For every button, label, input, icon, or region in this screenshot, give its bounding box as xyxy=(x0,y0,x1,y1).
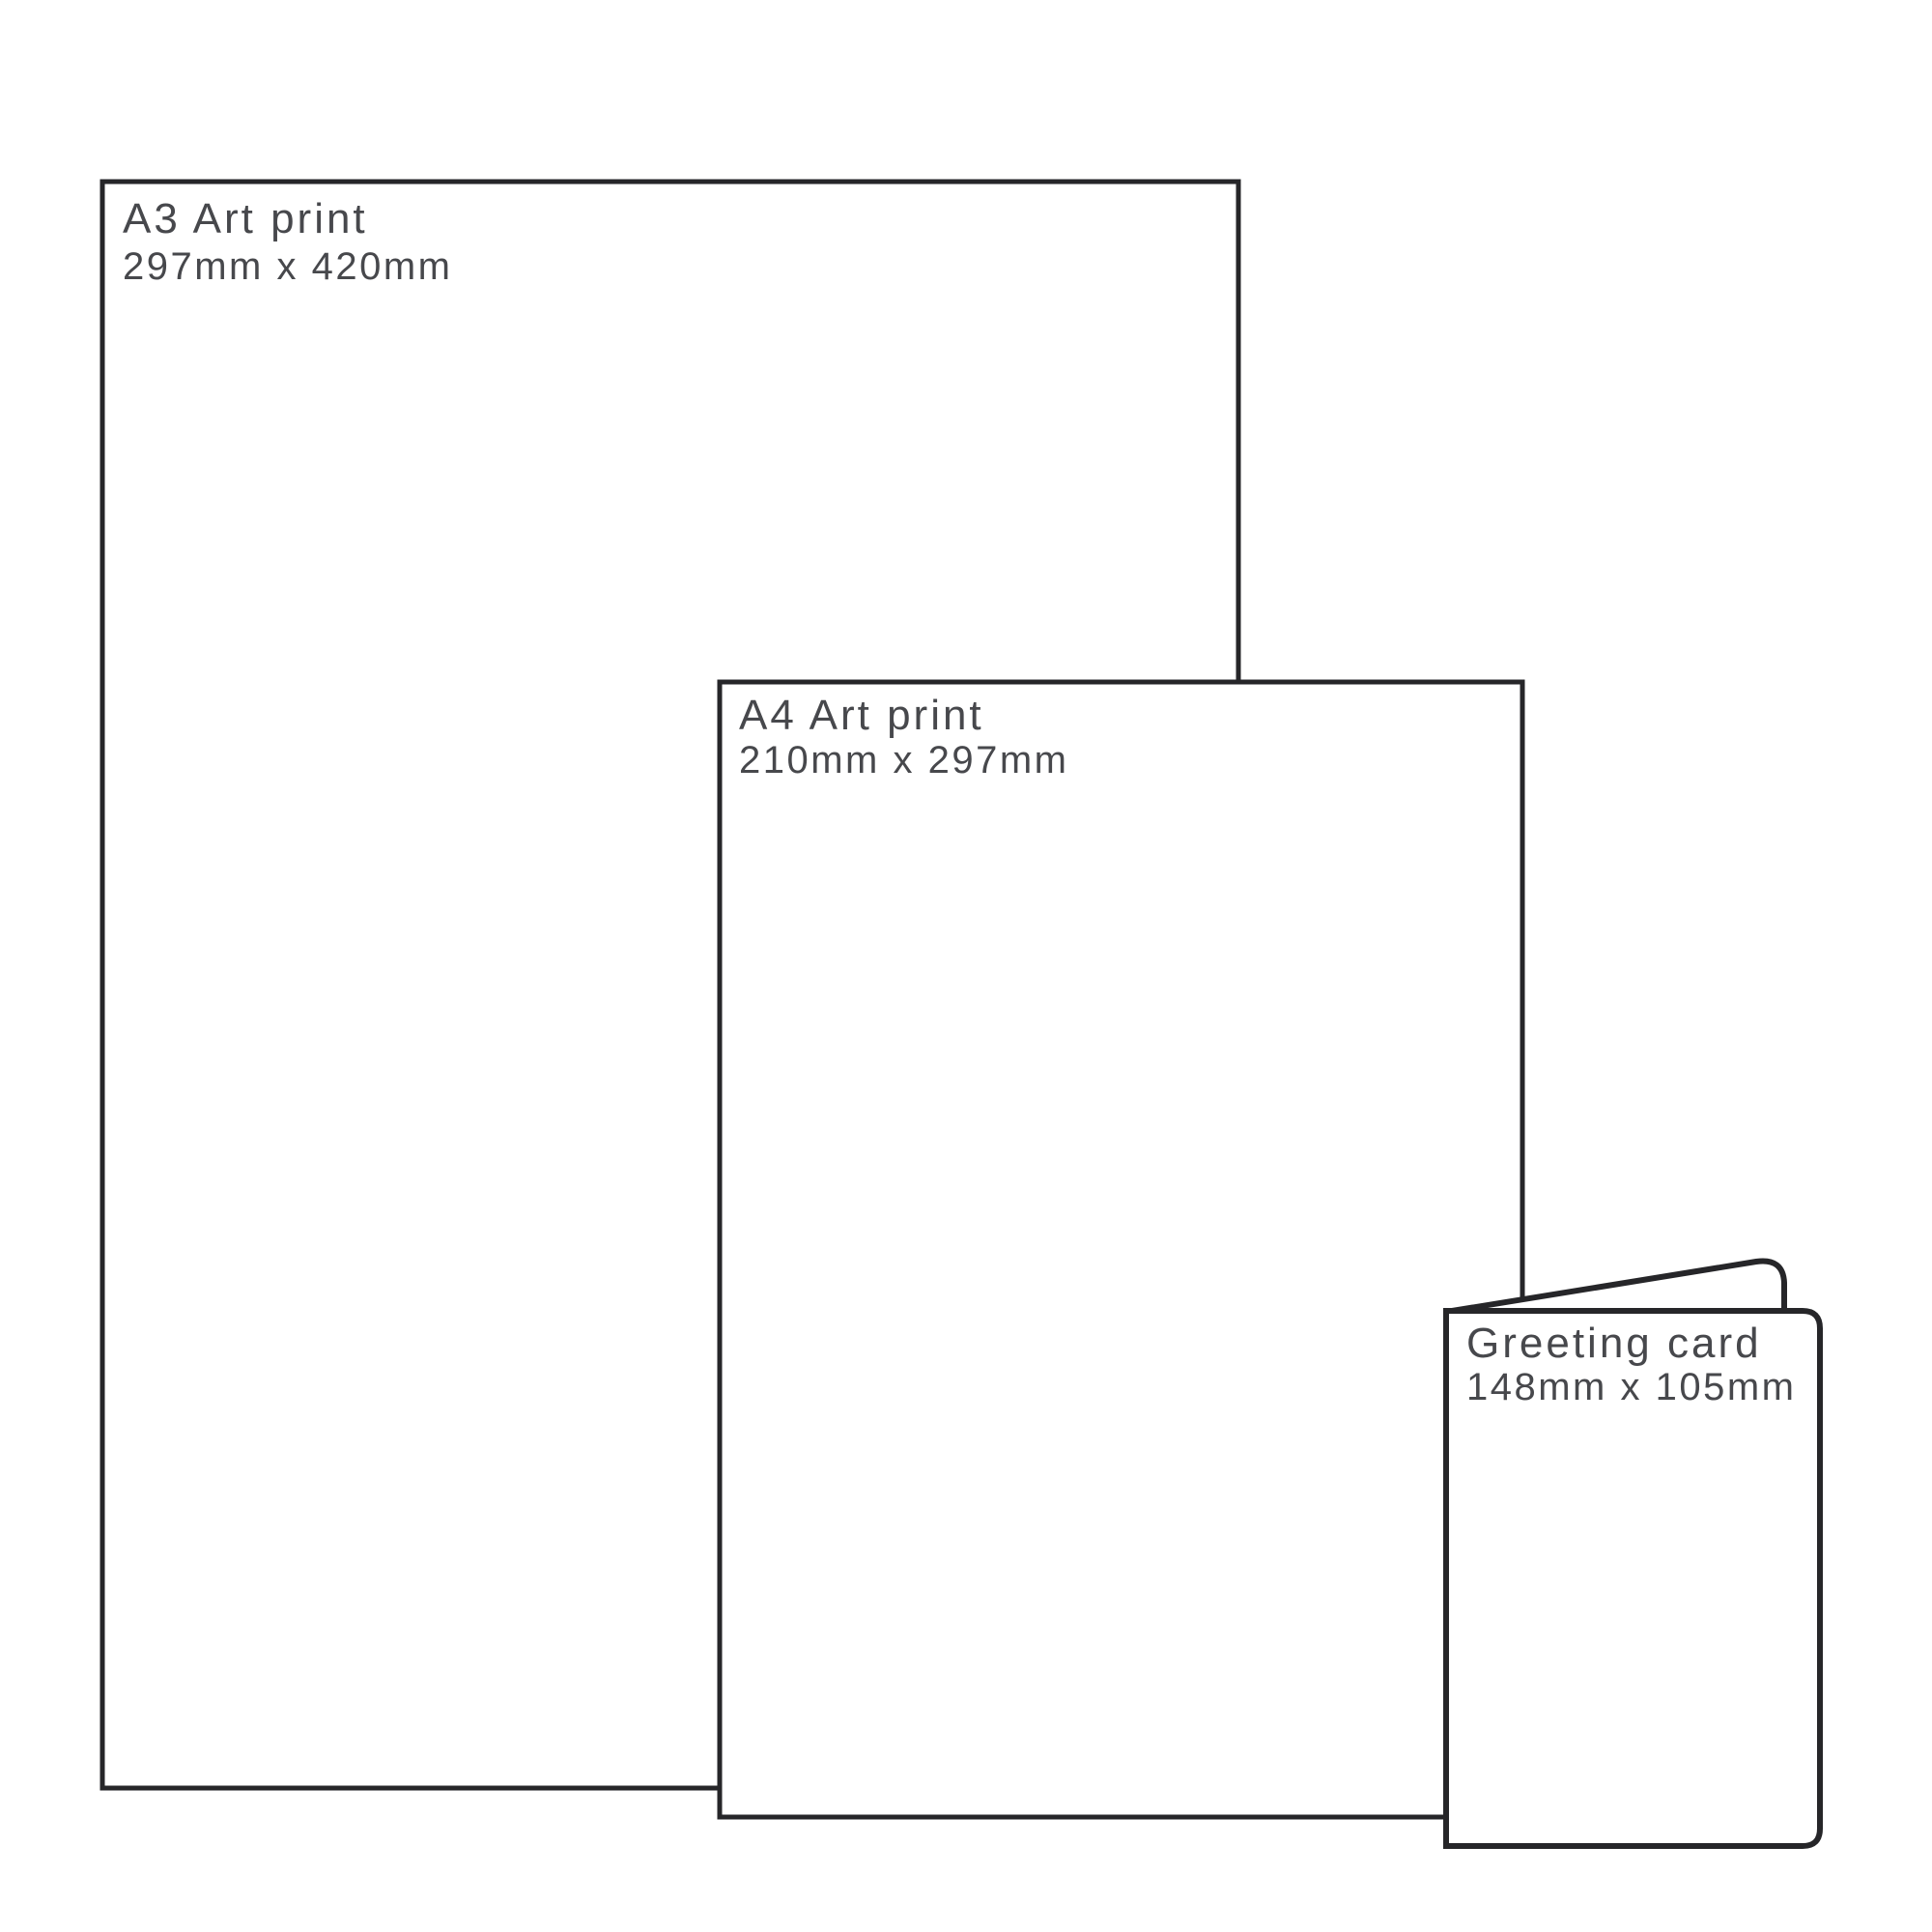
a4-print-rectangle xyxy=(720,682,1522,1817)
size-comparison-diagram: A3 Art print 297mm x 420mm A4 Art print … xyxy=(0,0,1932,1932)
a4-print-dimensions: 210mm x 297mm xyxy=(739,739,1068,781)
greeting-card-title: Greeting card xyxy=(1466,1320,1762,1367)
diagram-canvas: A3 Art print 297mm x 420mm A4 Art print … xyxy=(0,0,1932,1932)
a3-print-dimensions: 297mm x 420mm xyxy=(123,245,452,288)
greeting-card-dimensions: 148mm x 105mm xyxy=(1466,1366,1796,1408)
a3-print-title: A3 Art print xyxy=(123,195,368,242)
a4-print-title: A4 Art print xyxy=(739,692,984,739)
